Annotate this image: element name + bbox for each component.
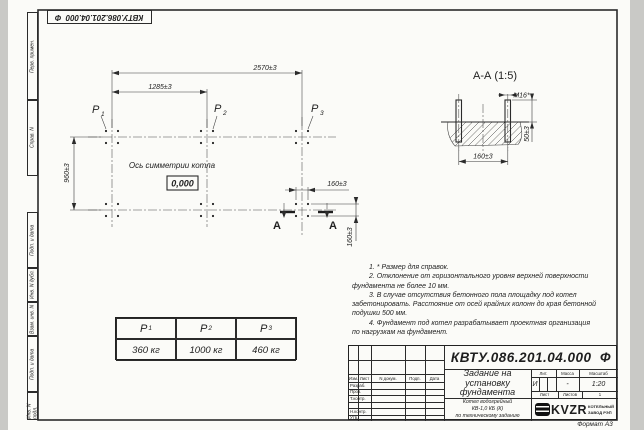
- section-title: А-А (1:5): [473, 70, 517, 82]
- note-line: 2. Отклонение от горизонтального уровня …: [352, 272, 620, 281]
- label-p1: P: [92, 104, 100, 116]
- load-table-header-p3: P3: [236, 318, 296, 339]
- dim-160-horizontal: 160±3: [327, 181, 347, 188]
- label-p2-sub: 2: [222, 110, 227, 117]
- margin-cell-podp-data-1: Подп. и дата: [27, 212, 38, 268]
- elevation-value: 0,000: [171, 179, 194, 189]
- drawing-viewport: 2570±3 1285±3 960±3 160±3 160±3 P 1 P 2 …: [0, 0, 644, 430]
- load-table-value-p3: 460 кг: [236, 339, 296, 361]
- title-block: Изм. Лист N докум. Подп. Дата Разраб. Пр…: [348, 345, 617, 420]
- listov-value: 1: [582, 391, 618, 398]
- row-t-kontr: Т.контр.: [350, 395, 371, 402]
- col-list: Лист: [358, 374, 371, 382]
- format-label: Формат А3: [560, 421, 630, 430]
- note-line: 1. * Размер для справок.: [352, 263, 620, 272]
- masshtab-value: 1:20: [579, 377, 618, 391]
- dim-1285: 1285±3: [148, 84, 171, 91]
- col-izm: Изм.: [349, 374, 358, 382]
- load-table-value-p2: 1000 кг: [176, 339, 236, 361]
- kvzr-logo-icon: [535, 403, 550, 416]
- load-table-header-p1: P1: [116, 318, 176, 339]
- col-n-dokum: N докум.: [371, 374, 405, 382]
- company-name: КОТЕЛЬНЫЙ ЗАВОД РЭП: [588, 398, 618, 421]
- row-utv: Утв.: [350, 415, 371, 422]
- note-line: 4. Фундамент под котел разрабатывает про…: [352, 319, 620, 328]
- dim-50: 50±3: [524, 126, 531, 142]
- note-line: 3. В случае отсутствия бетонного пола пл…: [352, 291, 620, 300]
- dim-160-section: 160±3: [473, 154, 493, 161]
- section-letter-left: А: [273, 220, 281, 232]
- section-cut-marks: А А: [273, 203, 337, 232]
- masshtab-label: Масштаб: [579, 369, 618, 377]
- dim-160-vertical: 160±3: [347, 227, 354, 247]
- lit-value: И: [531, 377, 539, 391]
- dim-960: 960±3: [64, 163, 71, 183]
- col-podp: Подп.: [405, 374, 425, 382]
- document-title: Задание на установку фундамента: [444, 369, 531, 398]
- margin-cell-vzam-inv-n: Взам. инв. N: [27, 302, 38, 336]
- section-view: А-А (1:5): [436, 70, 557, 165]
- margin-cell-podp-data-2: Подп. и дата: [27, 336, 38, 392]
- massa-label: Масса: [556, 369, 579, 377]
- listov-label: Листов: [558, 391, 582, 398]
- label-p3: P: [311, 103, 319, 115]
- section-letter-right: А: [329, 220, 337, 232]
- title-block-doc-number: КВТУ.086.201.04.000 Ф: [444, 346, 618, 369]
- axis-label: Ось симметрии котла: [129, 161, 216, 170]
- margin-cell-inv-n-dubl: Инв. N дубл.: [27, 268, 38, 302]
- label-p3-sub: 3: [320, 110, 324, 117]
- load-table: P1 P2 P3 360 кг 1000 кг 460 кг: [115, 317, 297, 360]
- document-subtitle: Котел водогрейный КВ-1,0 КБ (К) по техни…: [444, 398, 531, 421]
- note-line: по нагрузкам на фундамент.: [352, 328, 620, 337]
- load-table-header-p2: P2: [176, 318, 236, 339]
- lit-label: Лит.: [531, 369, 556, 377]
- bolt-thread-label: М16*: [513, 93, 530, 100]
- margin-cell-inv-n-podl: Инв. N подл.: [27, 392, 38, 420]
- technical-notes: 1. * Размер для справок. 2. Отклонение о…: [352, 263, 620, 337]
- dim-2570: 2570±3: [252, 65, 276, 72]
- foundation-hatch: [436, 116, 557, 152]
- massa-value: -: [556, 377, 579, 391]
- load-table-value-p1: 360 кг: [116, 339, 176, 361]
- plan-view: 2570±3 1285±3 960±3 160±3 160±3 P 1 P 2 …: [64, 65, 359, 247]
- label-p1-sub: 1: [101, 111, 105, 118]
- margin-cell-sprav-n: Справ. N: [27, 100, 38, 176]
- list-label: Лист: [531, 391, 558, 398]
- note-line: фундамента не более 10 мм.: [352, 282, 620, 291]
- note-line: забетонировать. Расстояние от осей крайн…: [352, 300, 620, 309]
- top-stamp-number: КВТУ.086.201.04.000 Ф: [55, 13, 143, 22]
- kvzr-logo-text: KVZR: [551, 398, 587, 421]
- label-p2: P: [214, 103, 222, 115]
- margin-cell-perv-primen: Перв. примен.: [27, 12, 38, 100]
- note-line: подушки 500 мм.: [352, 309, 620, 318]
- top-stamp: КВТУ.086.201.04.000 Ф: [47, 10, 152, 24]
- col-data: Дата: [425, 374, 444, 382]
